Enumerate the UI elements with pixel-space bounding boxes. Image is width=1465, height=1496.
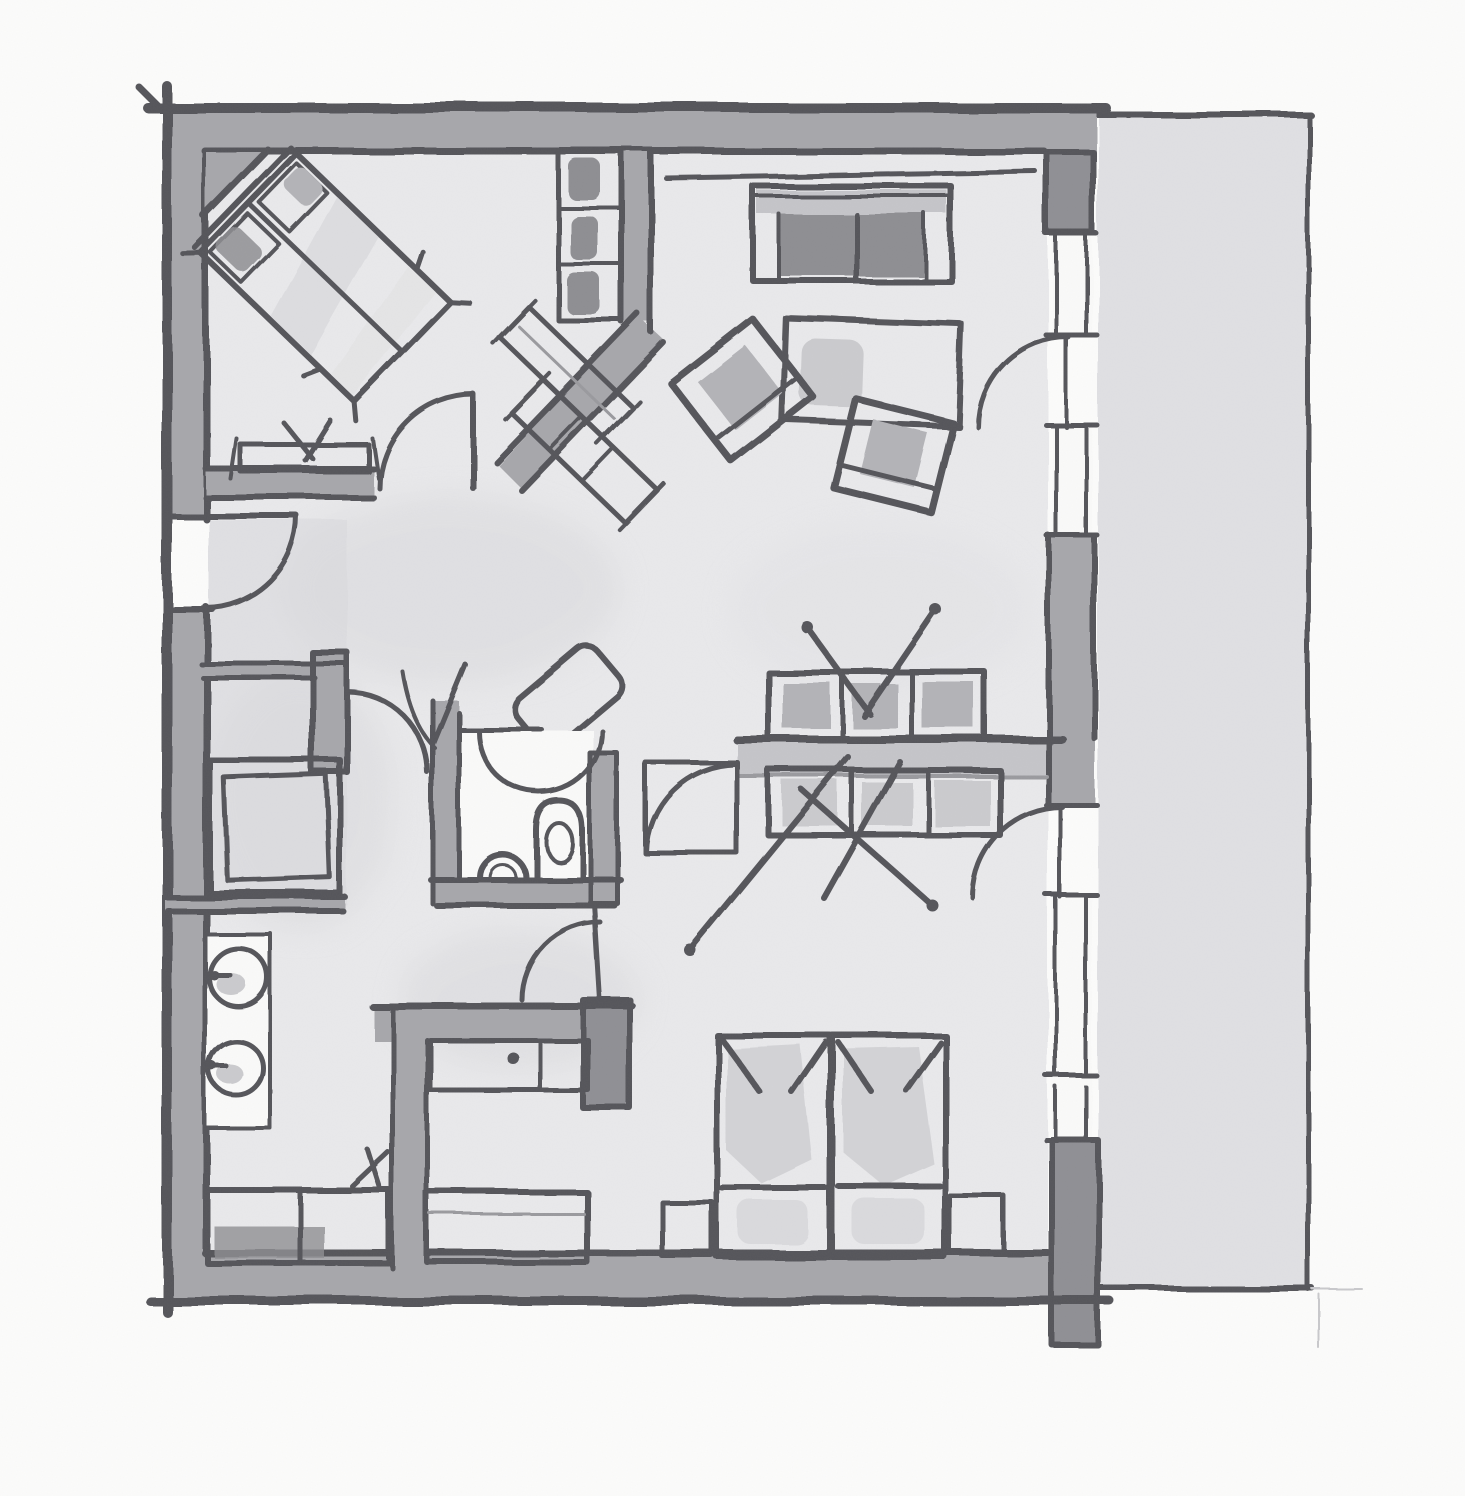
paper-grain <box>0 0 1465 1496</box>
floor-plan-sketch: Hand-drawn apartment floor plan sketch (… <box>0 0 1465 1496</box>
floor-plan-svg: Hand-drawn apartment floor plan sketch (… <box>0 0 1465 1496</box>
